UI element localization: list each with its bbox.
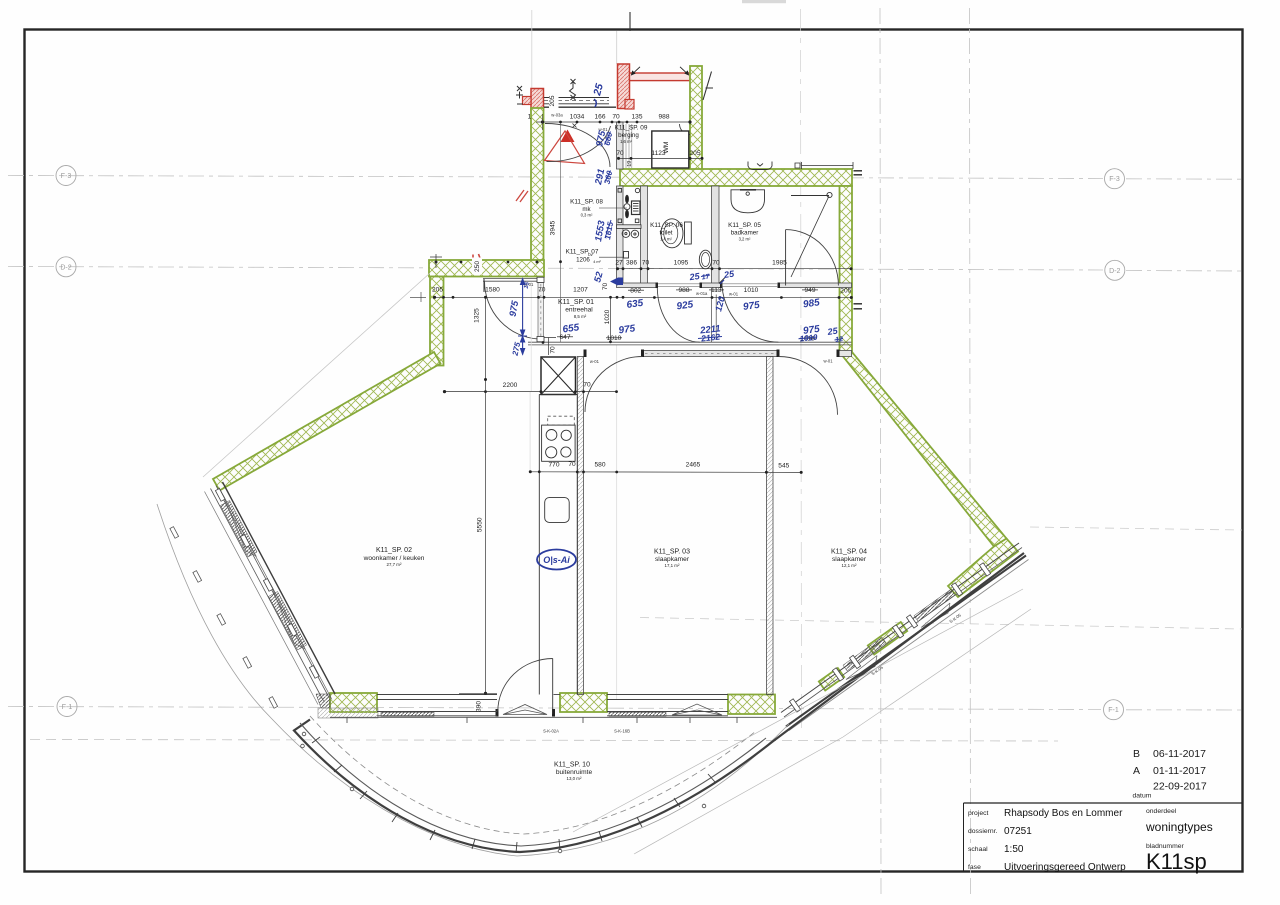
svg-text:205: 205 [432, 287, 443, 294]
svg-text:1,4 m²: 1,4 m² [660, 237, 672, 242]
svg-text:988: 988 [678, 287, 689, 294]
svg-text:250: 250 [474, 261, 481, 272]
svg-text:3945: 3945 [550, 220, 557, 235]
svg-text:70: 70 [712, 260, 720, 267]
svg-text:205: 205 [840, 287, 851, 294]
svg-text:F-1: F-1 [62, 704, 73, 711]
svg-text:fase: fase [968, 864, 981, 871]
svg-text:O|s-Ai: O|s-Ai [543, 555, 570, 565]
svg-text:K11_SP. 02: K11_SP. 02 [376, 547, 412, 554]
svg-text:390: 390 [476, 701, 483, 712]
svg-text:22-09-2017: 22-09-2017 [1153, 781, 1207, 793]
svg-text:70: 70 [538, 287, 546, 294]
svg-text:113: 113 [711, 287, 722, 294]
svg-text:Rhapsody Bos en Lommer: Rhapsody Bos en Lommer [1004, 808, 1123, 819]
svg-text:386: 386 [626, 260, 637, 267]
svg-text:2465: 2465 [686, 462, 701, 469]
svg-text:70: 70 [642, 260, 650, 267]
svg-text:70: 70 [568, 461, 576, 468]
svg-text:988: 988 [658, 114, 669, 121]
svg-text:K11_SP. 07: K11_SP. 07 [566, 249, 599, 256]
svg-text:949: 949 [804, 287, 815, 294]
svg-text:w-01: w-01 [823, 359, 833, 364]
svg-text:K11_SP. 10: K11_SP. 10 [554, 762, 590, 769]
svg-text:19: 19 [627, 161, 633, 167]
svg-text:berging: berging [618, 132, 639, 139]
svg-text:toilet: toilet [659, 230, 672, 237]
svg-text:schaal: schaal [968, 846, 988, 853]
svg-text:580: 580 [594, 461, 605, 468]
svg-text:K11_SP. 08: K11_SP. 08 [570, 199, 603, 206]
svg-text:project: project [968, 810, 989, 817]
svg-text:dossiernr.: dossiernr. [968, 828, 998, 835]
svg-text:K11_SP. 06: K11_SP. 06 [650, 222, 683, 229]
svg-text:A: A [1133, 765, 1140, 777]
svg-text:70: 70 [550, 346, 557, 354]
svg-text:70: 70 [602, 283, 609, 291]
svg-text:70: 70 [583, 381, 591, 388]
svg-text:WM: WM [663, 142, 670, 154]
svg-text:K11_SP. 09: K11_SP. 09 [615, 125, 648, 132]
svg-text:12,1 m²: 12,1 m² [842, 563, 857, 568]
svg-text:70: 70 [616, 150, 624, 157]
svg-text:5550: 5550 [477, 517, 484, 532]
svg-text:1010: 1010 [744, 287, 759, 294]
svg-text:woonkamer / keuken: woonkamer / keuken [363, 555, 425, 562]
svg-text:8,5 m²: 8,5 m² [574, 314, 587, 319]
svg-text:27,7 m²: 27,7 m² [387, 562, 402, 567]
svg-text:B: B [1133, 748, 1140, 760]
svg-text:Uitvoeringsgereed Ontwerp: Uitvoeringsgereed Ontwerp [1004, 862, 1126, 873]
svg-text:buitenruimte: buitenruimte [556, 769, 593, 776]
svg-text:2200: 2200 [503, 382, 518, 389]
svg-text:w-03a: w-03a [551, 113, 563, 118]
svg-text:K11_SP. 03: K11_SP. 03 [654, 549, 690, 556]
svg-text:205: 205 [689, 150, 700, 157]
svg-text:1985: 1985 [772, 260, 787, 267]
svg-text:K11_SP. 04: K11_SP. 04 [831, 549, 867, 556]
svg-text:F-3: F-3 [1109, 176, 1120, 183]
svg-text:K11sp: K11sp [1146, 849, 1207, 874]
svg-text:F-1: F-1 [1108, 707, 1119, 714]
svg-text:27: 27 [615, 260, 623, 267]
svg-text:D-2: D-2 [1109, 268, 1120, 275]
svg-text:S-K-16B: S-K-16B [614, 729, 630, 734]
svg-text:onderdeel: onderdeel [1146, 808, 1177, 815]
svg-text:slaapkamer: slaapkamer [832, 556, 867, 563]
svg-text:205: 205 [549, 95, 556, 106]
svg-text:K11_SP. 05: K11_SP. 05 [728, 222, 761, 229]
svg-text:0,3 m²: 0,3 m² [581, 213, 593, 218]
svg-text:F-3: F-3 [61, 173, 72, 180]
svg-text:1206: 1206 [576, 257, 590, 264]
svg-text:1,6 m²: 1,6 m² [620, 139, 632, 144]
svg-text:802: 802 [630, 287, 641, 294]
svg-text:01-11-2017: 01-11-2017 [1153, 765, 1206, 777]
svg-text:770: 770 [548, 461, 559, 468]
svg-text:1:50: 1:50 [1004, 844, 1024, 855]
svg-text:17,1 m²: 17,1 m² [665, 563, 680, 568]
svg-text:07251: 07251 [1004, 826, 1032, 837]
svg-text:166: 166 [594, 114, 605, 121]
svg-text:135: 135 [631, 114, 642, 121]
svg-text:S-K-02A: S-K-02A [543, 729, 559, 734]
svg-text:1: 1 [528, 114, 532, 121]
svg-text:4 m²: 4 m² [593, 260, 601, 264]
svg-text:entreehal: entreehal [565, 307, 593, 314]
svg-text:1325: 1325 [474, 308, 481, 323]
svg-text:D-2: D-2 [60, 264, 71, 271]
svg-text:slaapkamer: slaapkamer [655, 556, 690, 563]
svg-text:06-11-2017: 06-11-2017 [1153, 748, 1206, 760]
svg-text:w-01a: w-01a [696, 291, 708, 296]
svg-text:1020: 1020 [604, 309, 611, 324]
svg-text:w-01: w-01 [729, 292, 739, 297]
svg-text:1034: 1034 [570, 114, 585, 121]
svg-text:w-01: w-01 [590, 359, 600, 364]
svg-text:badkamer: badkamer [731, 230, 759, 237]
svg-text:1095: 1095 [674, 260, 689, 267]
svg-text:datum: datum [1133, 793, 1152, 800]
svg-text:13,0 m²: 13,0 m² [567, 776, 582, 781]
svg-text:woningtypes: woningtypes [1145, 820, 1213, 834]
svg-text:1580: 1580 [485, 287, 500, 294]
svg-text:545: 545 [778, 462, 789, 469]
svg-text:3,2 m²: 3,2 m² [739, 237, 751, 242]
svg-text:1207: 1207 [573, 287, 588, 294]
svg-text:70: 70 [612, 114, 620, 121]
svg-text:K11_SP. 01: K11_SP. 01 [558, 299, 594, 306]
